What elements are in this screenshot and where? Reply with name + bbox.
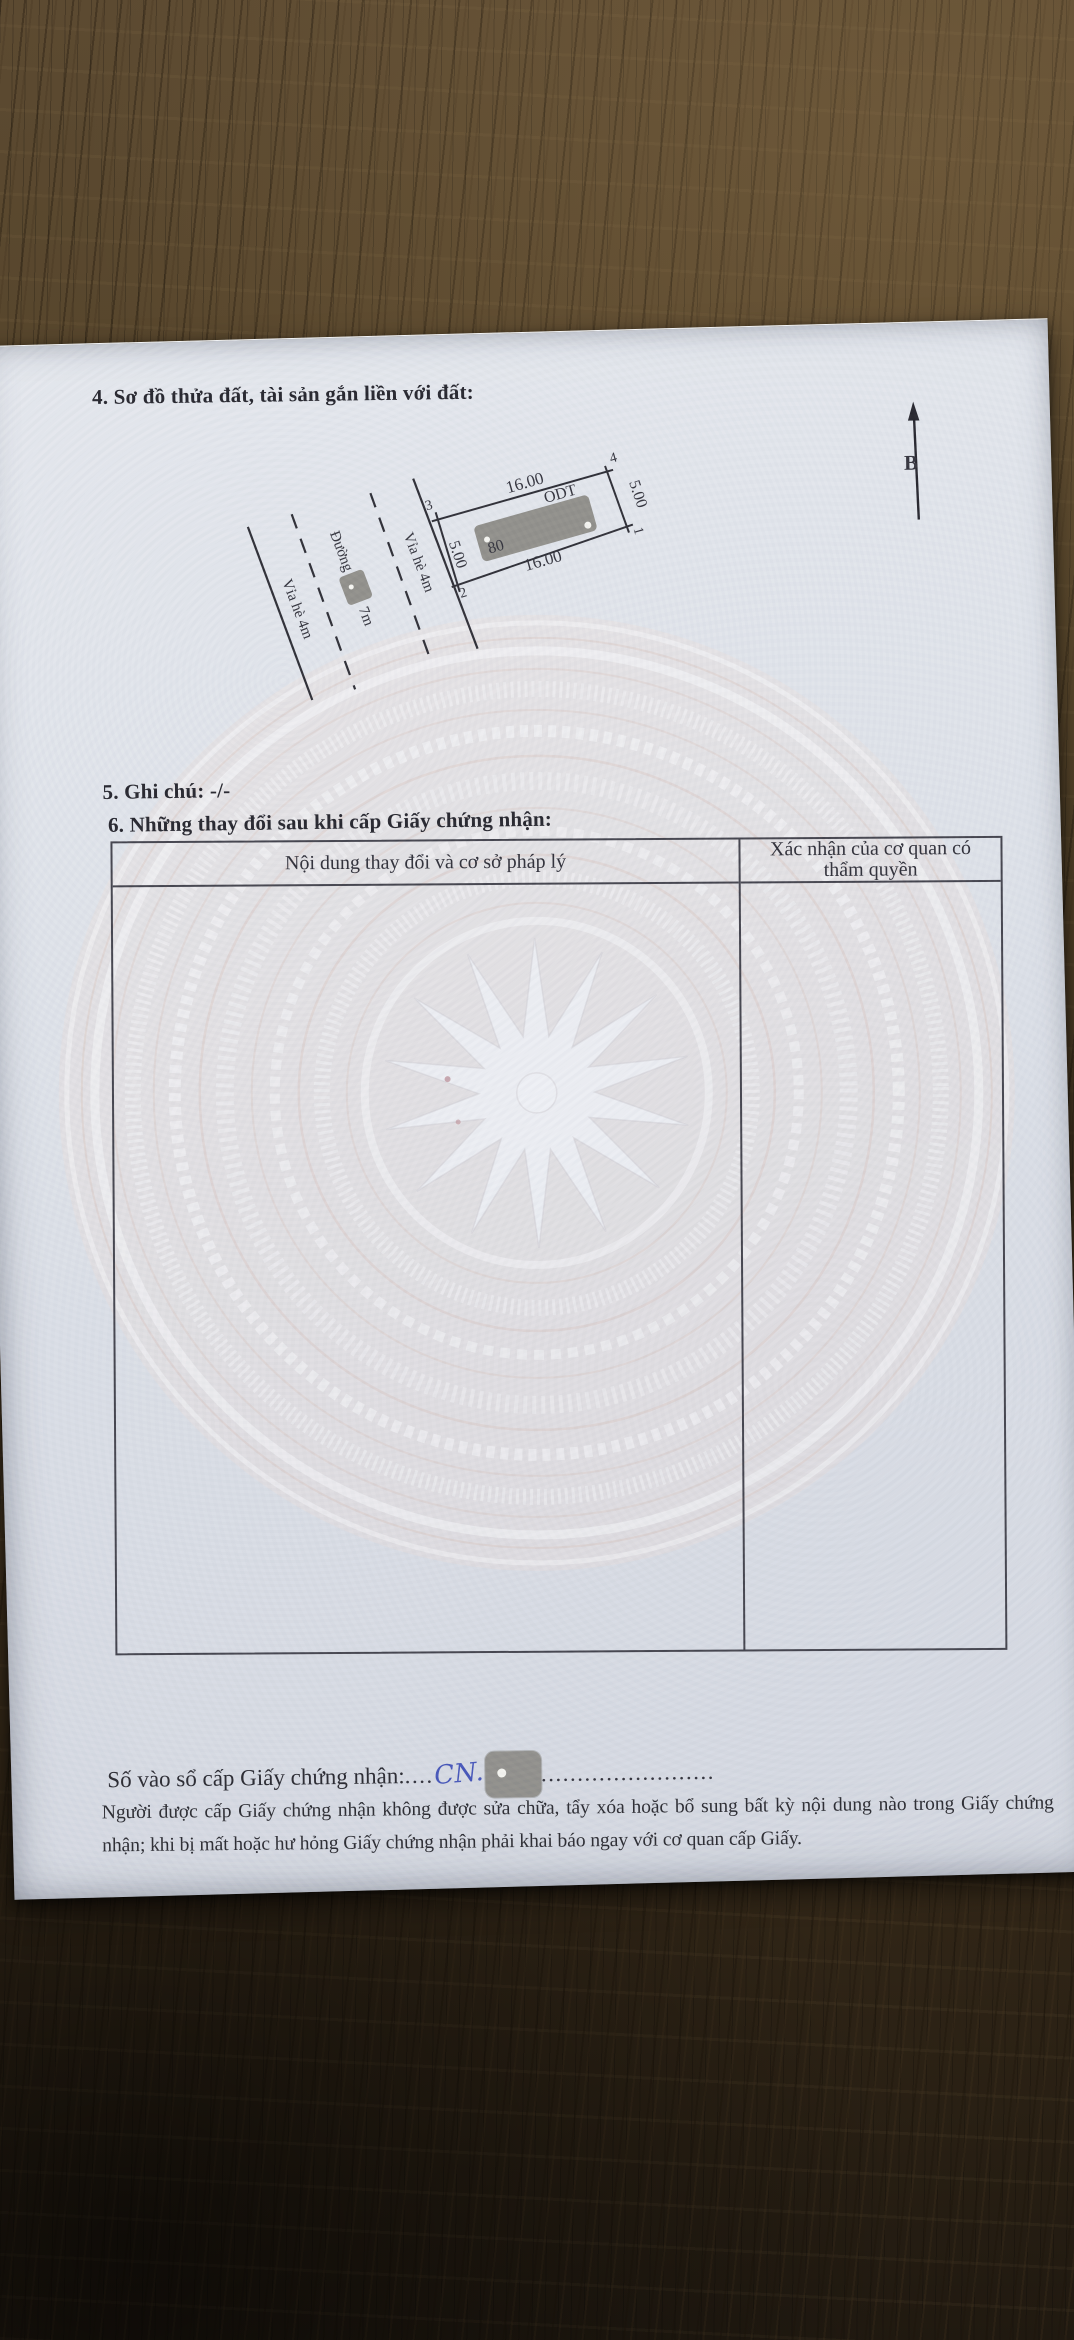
redaction-box — [338, 569, 373, 606]
sidewalk-inner-label: Vỉa hè 4m — [400, 530, 437, 594]
certificate-page-content: 4. Sơ đồ thửa đất, tài sản gắn liền với … — [0, 326, 1074, 1894]
north-arrow-icon: B — [884, 399, 950, 532]
dimension-bottom: 16.00 — [522, 546, 564, 575]
certificate-paper: 4. Sơ đồ thửa đất, tài sản gắn liền với … — [0, 318, 1074, 1900]
column-header-authority: Xác nhận của cơ quan có thẩm quyền — [740, 838, 1000, 884]
sidewalk-outer-label: Vỉa hè 4m — [278, 577, 315, 641]
changes-table: Nội dung thay đổi và cơ sở pháp lý Xác n… — [110, 836, 1007, 1655]
plot-diagram: 16.00 16.00 5.00 5.00 ODT 80 3 4 1 2 Vỉa… — [220, 446, 674, 717]
dimension-left: 5.00 — [445, 539, 470, 571]
dot-leader: ........................ — [541, 1759, 715, 1786]
photo-of-land-certificate: 4. Sơ đồ thửa đất, tài sản gắn liền với … — [0, 0, 1074, 2340]
svg-text:Đường: Đường — [326, 529, 356, 574]
section4-title: 4. Sơ đồ thửa đất, tài sản gắn liền với … — [92, 380, 474, 410]
notice-paragraph: Người được cấp Giấy chứng nhận không đượ… — [102, 1787, 1055, 1862]
svg-text:7m: 7m — [355, 605, 377, 629]
dot-leader: .... — [404, 1763, 433, 1788]
dimension-top: 16.00 — [504, 468, 546, 497]
serial-number-label: Số vào sổ cấp Giấy chứng nhận: — [107, 1763, 405, 1792]
table-column-content: Nội dung thay đổi và cơ sở pháp lý — [112, 840, 745, 1654]
redaction-box — [485, 1751, 542, 1798]
corner-4: 4 — [608, 450, 619, 466]
corner-1: 1 — [630, 526, 646, 537]
road-label: Đường 7m — [322, 527, 382, 630]
dimension-right: 5.00 — [625, 478, 650, 510]
column-header-content: Nội dung thay đổi và cơ sở pháp lý — [112, 840, 738, 888]
table-body-content-empty — [113, 884, 744, 1654]
north-label: B — [904, 451, 918, 475]
serial-handwritten-value: CN. — [433, 1757, 485, 1791]
section5-note: 5. Ghi chú: -/- — [102, 778, 230, 805]
table-body-authority-empty — [741, 882, 1006, 1650]
table-column-authority: Xác nhận của cơ quan có thẩm quyền — [740, 838, 1005, 1650]
